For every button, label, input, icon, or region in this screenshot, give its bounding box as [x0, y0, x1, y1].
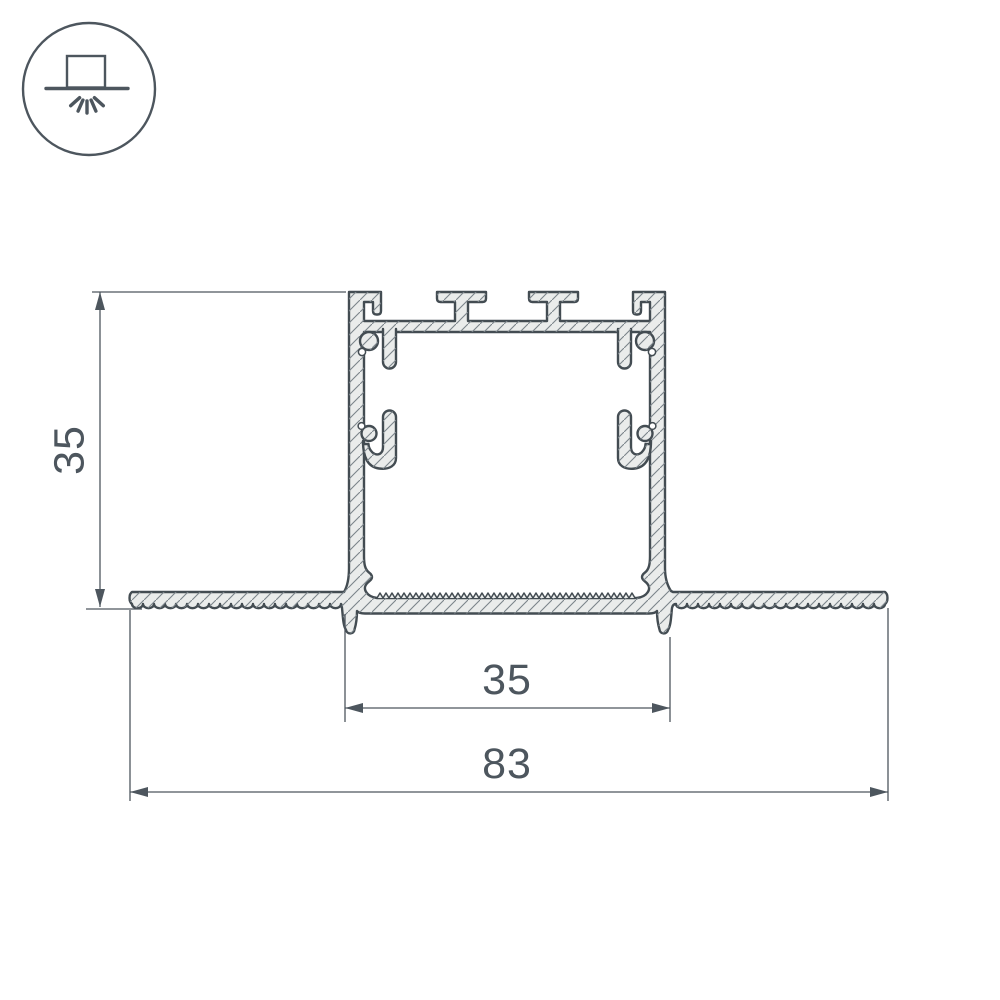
overall-width-dimension-label: 83 — [482, 740, 532, 788]
mid-right-screw-slot — [649, 423, 656, 430]
profile-body-shape — [130, 292, 888, 633]
recessed-ceiling-light-icon — [23, 23, 155, 155]
profile-body-hatching — [130, 292, 888, 633]
serrated-strip-seat — [377, 593, 635, 598]
height-dimension-label: 35 — [45, 425, 93, 475]
icon-fixture-box — [67, 56, 105, 88]
profile-drawing-svg: 35 35 83 — [0, 0, 1000, 1000]
icon-light-rays — [71, 98, 104, 113]
mid-left-screw-slot — [358, 423, 365, 430]
upper-right-screw-slot — [648, 348, 655, 355]
dimension-overall-width: 83 — [130, 608, 888, 801]
inner-width-dimension-label: 35 — [482, 656, 532, 704]
dimension-inner-width: 35 — [345, 614, 670, 722]
profile-cross-section — [130, 292, 888, 633]
dimension-height: 35 — [45, 292, 346, 609]
drawing-canvas: 35 35 83 — [0, 0, 1000, 1000]
upper-left-screw-slot — [358, 348, 365, 355]
